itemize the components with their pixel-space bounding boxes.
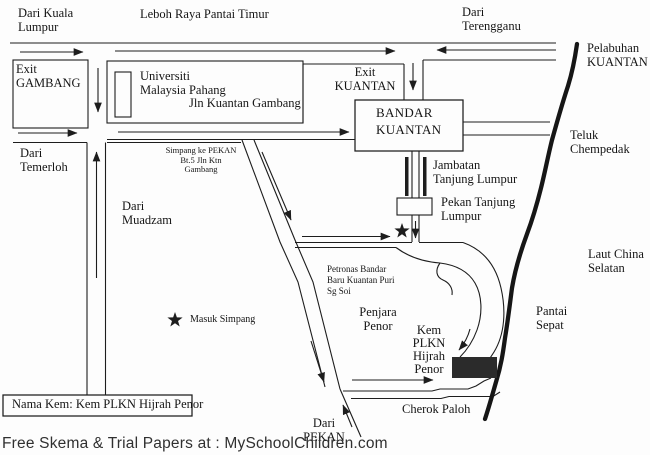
label-universiti-malaysia-pahang: Universiti Malaysia Pahang	[140, 70, 226, 97]
label-dari-kuala-lumpur: Dari Kuala Lumpur	[18, 7, 73, 34]
highway-leboh-raya	[10, 43, 556, 60]
cherok-paloh-road	[343, 378, 500, 399]
footer-credit-text: Free Skema & Trial Papers at : MySchoolC…	[2, 435, 388, 452]
map-page: Dari Kuala Lumpur Leboh Raya Pantai Timu…	[0, 0, 650, 455]
label-teluk-chempedak: Teluk Chempedak	[570, 129, 630, 156]
label-dari-muadzam: Dari Muadzam	[122, 200, 172, 227]
label-penjara-penor: Penjara Penor	[354, 306, 402, 333]
label-simpang-ke-pekan: Simpang ke PEKAN Bt.5 Jln Ktn Gambang	[158, 146, 244, 175]
legend-star-icon	[167, 312, 182, 326]
label-exit-kuantan: Exit KUANTAN	[330, 66, 400, 93]
pekan-tanjung-lumpur-box	[397, 198, 432, 215]
label-nama-kem: Nama Kem: Kem PLKN Hijrah Penor	[12, 398, 203, 412]
label-bandar-kuantan: BANDAR KUANTAN	[376, 104, 441, 138]
label-dari-temerloh: Dari Temerloh	[20, 147, 68, 174]
label-exit-gambang: Exit GAMBANG	[16, 63, 81, 90]
label-cherok-paloh: Cherok Paloh	[402, 403, 470, 417]
kem-plkn-camp-rect	[452, 357, 497, 378]
arrow-south-to-pekan-2	[311, 341, 324, 382]
label-petronas-bandar-baru: Petronas Bandar Baru Kuantan Puri Sg Soi	[327, 264, 395, 297]
coast-roads	[463, 122, 550, 135]
label-leboh-raya-pantai-timur: Leboh Raya Pantai Timur	[140, 8, 269, 22]
label-pantai-sepat: Pantai Sepat	[536, 305, 567, 332]
label-jln-kuantan-gambang: Jln Kuantan Gambang	[189, 97, 301, 111]
label-pekan-tanjung-lumpur: Pekan Tanjung Lumpur	[441, 196, 515, 223]
jln-kuantan-gambang-road	[107, 132, 355, 143]
label-pelabuhan-kuantan: Pelabuhan KUANTAN	[587, 42, 648, 69]
junction-star-icon	[394, 223, 409, 237]
bridge-rail-right	[423, 157, 427, 196]
camp-access-road	[295, 237, 463, 248]
label-kem-plkn-hijrah-penor: Kem PLKN Hijrah Penor	[404, 324, 454, 376]
ump-building	[115, 72, 131, 117]
bridge-rail-left	[405, 157, 409, 196]
label-dari-terengganu: Dari Terengganu	[462, 6, 521, 33]
label-masuk-simpang: Masuk Simpang	[190, 313, 255, 327]
arrow-south-to-pekan	[262, 152, 291, 220]
label-laut-china-selatan: Laut China Selatan	[588, 248, 644, 275]
label-jambatan-tanjung-lumpur: Jambatan Tanjung Lumpur	[433, 159, 517, 186]
coastline	[485, 44, 577, 419]
road-map-drawing	[0, 0, 650, 455]
